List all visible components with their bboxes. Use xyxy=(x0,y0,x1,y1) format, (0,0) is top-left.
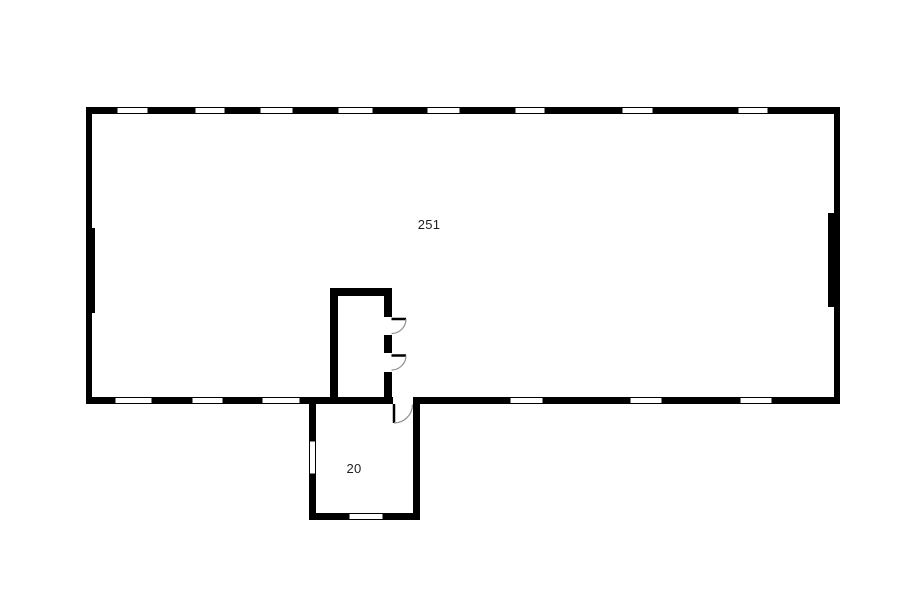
wall-segment xyxy=(653,107,738,114)
window xyxy=(630,398,662,404)
window xyxy=(738,108,768,114)
closet-top-wall xyxy=(330,288,392,296)
window xyxy=(510,398,543,404)
window xyxy=(310,441,316,474)
main-room-area xyxy=(92,114,834,397)
window xyxy=(260,108,293,114)
wall-segment xyxy=(223,397,262,404)
wall-segment xyxy=(148,107,195,114)
wall-segment xyxy=(662,397,740,404)
wall-segment xyxy=(373,107,427,114)
wall-pier xyxy=(86,228,95,313)
floorplan-svg: 251 20 xyxy=(0,0,900,604)
window xyxy=(338,108,373,114)
window xyxy=(115,398,152,404)
wall-segment xyxy=(768,107,840,114)
closet-right-wall xyxy=(384,372,392,404)
small-room-left-wall xyxy=(309,404,316,441)
wall-segment xyxy=(413,397,510,404)
window xyxy=(515,108,545,114)
wall-segment xyxy=(545,107,622,114)
window xyxy=(622,108,653,114)
window xyxy=(740,398,772,404)
closet-right-wall xyxy=(384,335,392,353)
wall-segment xyxy=(543,397,630,404)
closet-right-wall xyxy=(384,288,392,317)
window xyxy=(349,514,383,520)
window xyxy=(117,108,148,114)
window xyxy=(195,108,225,114)
floorplan-canvas: 251 20 xyxy=(0,0,900,604)
room-label-main: 251 xyxy=(418,217,441,232)
wall-segment xyxy=(460,107,515,114)
wall-segment xyxy=(152,397,192,404)
small-room-bottom-wall xyxy=(383,513,420,520)
window xyxy=(427,108,460,114)
wall-segment xyxy=(293,107,338,114)
wall-segment xyxy=(225,107,260,114)
closet-left-wall xyxy=(330,288,338,404)
small-room-right-wall xyxy=(413,404,420,520)
window xyxy=(262,398,300,404)
window xyxy=(192,398,223,404)
room-label-small: 20 xyxy=(346,461,361,476)
small-room-bottom-wall xyxy=(309,513,349,520)
wall-segment xyxy=(772,397,840,404)
small-room-area xyxy=(316,404,413,513)
wall-segment xyxy=(300,397,393,404)
wall-pier xyxy=(828,213,840,307)
